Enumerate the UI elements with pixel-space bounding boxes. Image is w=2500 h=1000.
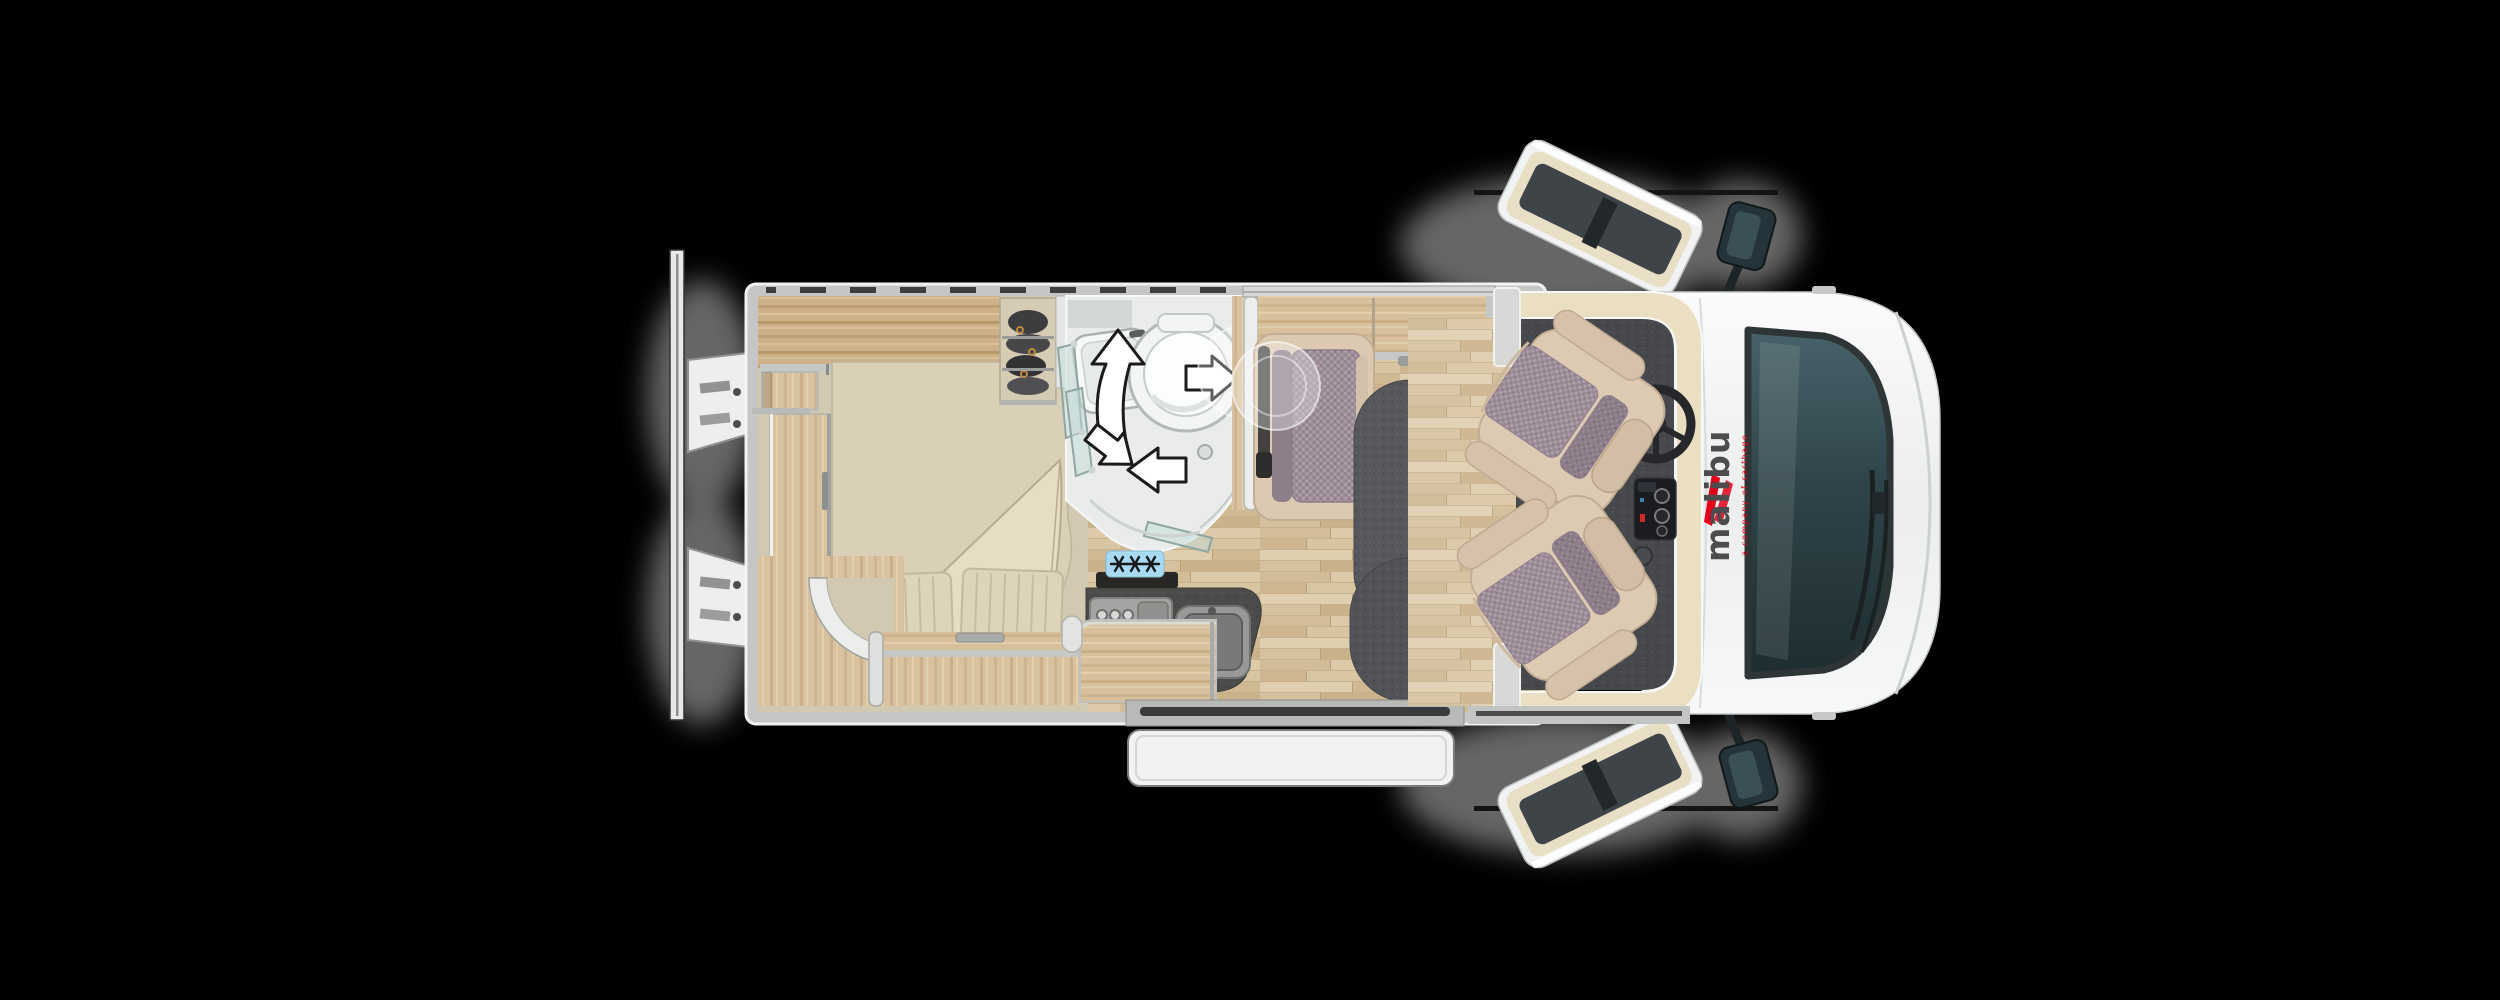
cab-interior [1408, 288, 1702, 724]
door-track [1140, 707, 1450, 716]
burner [1123, 610, 1133, 620]
logo-wordmark: malibu [1698, 430, 1737, 562]
seatbelt-buckle [1256, 452, 1272, 478]
logo-tagline: a company of carthago [1740, 434, 1749, 556]
bench-handle [956, 633, 1004, 642]
burner [1110, 610, 1120, 620]
dinette-bench [1232, 334, 1374, 520]
rear-bench-sideboard [869, 632, 1079, 706]
burner [1097, 610, 1107, 620]
camper-floorplan-illustration: ✳✳✳ malibu a company of carthago [0, 0, 2500, 1000]
wardrobe-hanging-clothes [1000, 296, 1066, 405]
dashboard-console [1634, 478, 1676, 540]
mirror-sensor [1872, 492, 1886, 514]
worktop-extension-flap [1062, 616, 1216, 702]
shower-drain [1198, 445, 1212, 459]
wall-window-ticks [766, 287, 1226, 293]
entry-area [1126, 700, 1464, 786]
floorplan-canvas: ✳✳✳ malibu a company of carthago [0, 0, 2500, 1000]
freezer-rating-badge: ✳✳✳ [1106, 551, 1164, 577]
malibu-logo: malibu a company of carthago [1698, 430, 1749, 562]
headboard-cabinet [758, 296, 1000, 368]
cabinet-handle [822, 472, 828, 510]
entry-step [1128, 730, 1454, 786]
vanity-counter [1068, 300, 1132, 328]
